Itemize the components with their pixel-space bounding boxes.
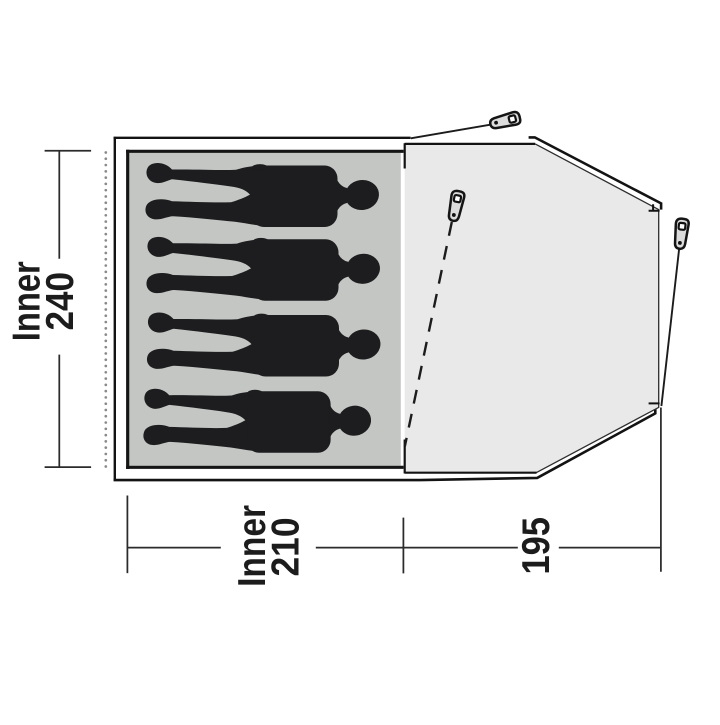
svg-text:210: 210 xyxy=(264,518,307,577)
svg-text:195: 195 xyxy=(515,517,558,575)
svg-text:240: 240 xyxy=(39,272,82,331)
